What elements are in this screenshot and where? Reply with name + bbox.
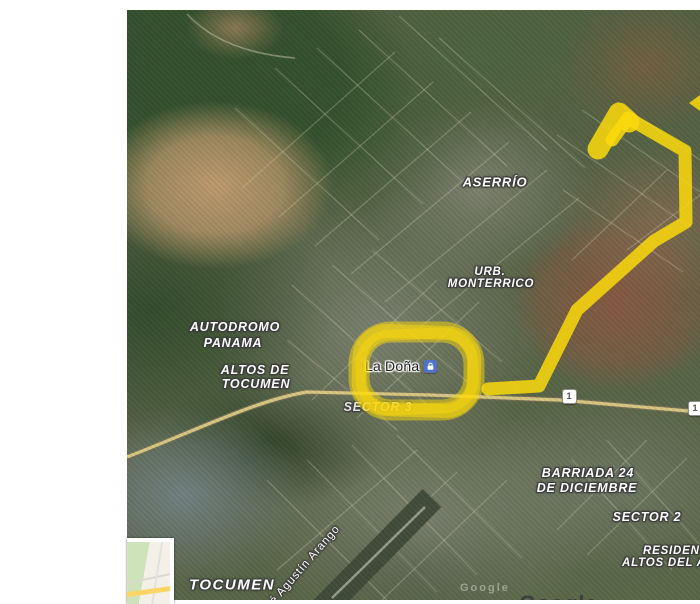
inset-road-yellow — [127, 583, 174, 598]
route-shield-2: 1 — [688, 401, 700, 416]
map-canvas[interactable]: La Doña Google Google ASERRÍOURB.MONTERR… — [127, 10, 700, 600]
inset-road-vertical — [150, 538, 164, 604]
route-shield-1: 1 — [562, 389, 577, 404]
inset-road-minor — [127, 569, 174, 585]
mini-map-inset[interactable] — [127, 538, 174, 604]
screenshot-root: { "map": { "type": "google-maps-satellit… — [0, 0, 700, 600]
route-shields-layer: 11 — [127, 10, 700, 600]
